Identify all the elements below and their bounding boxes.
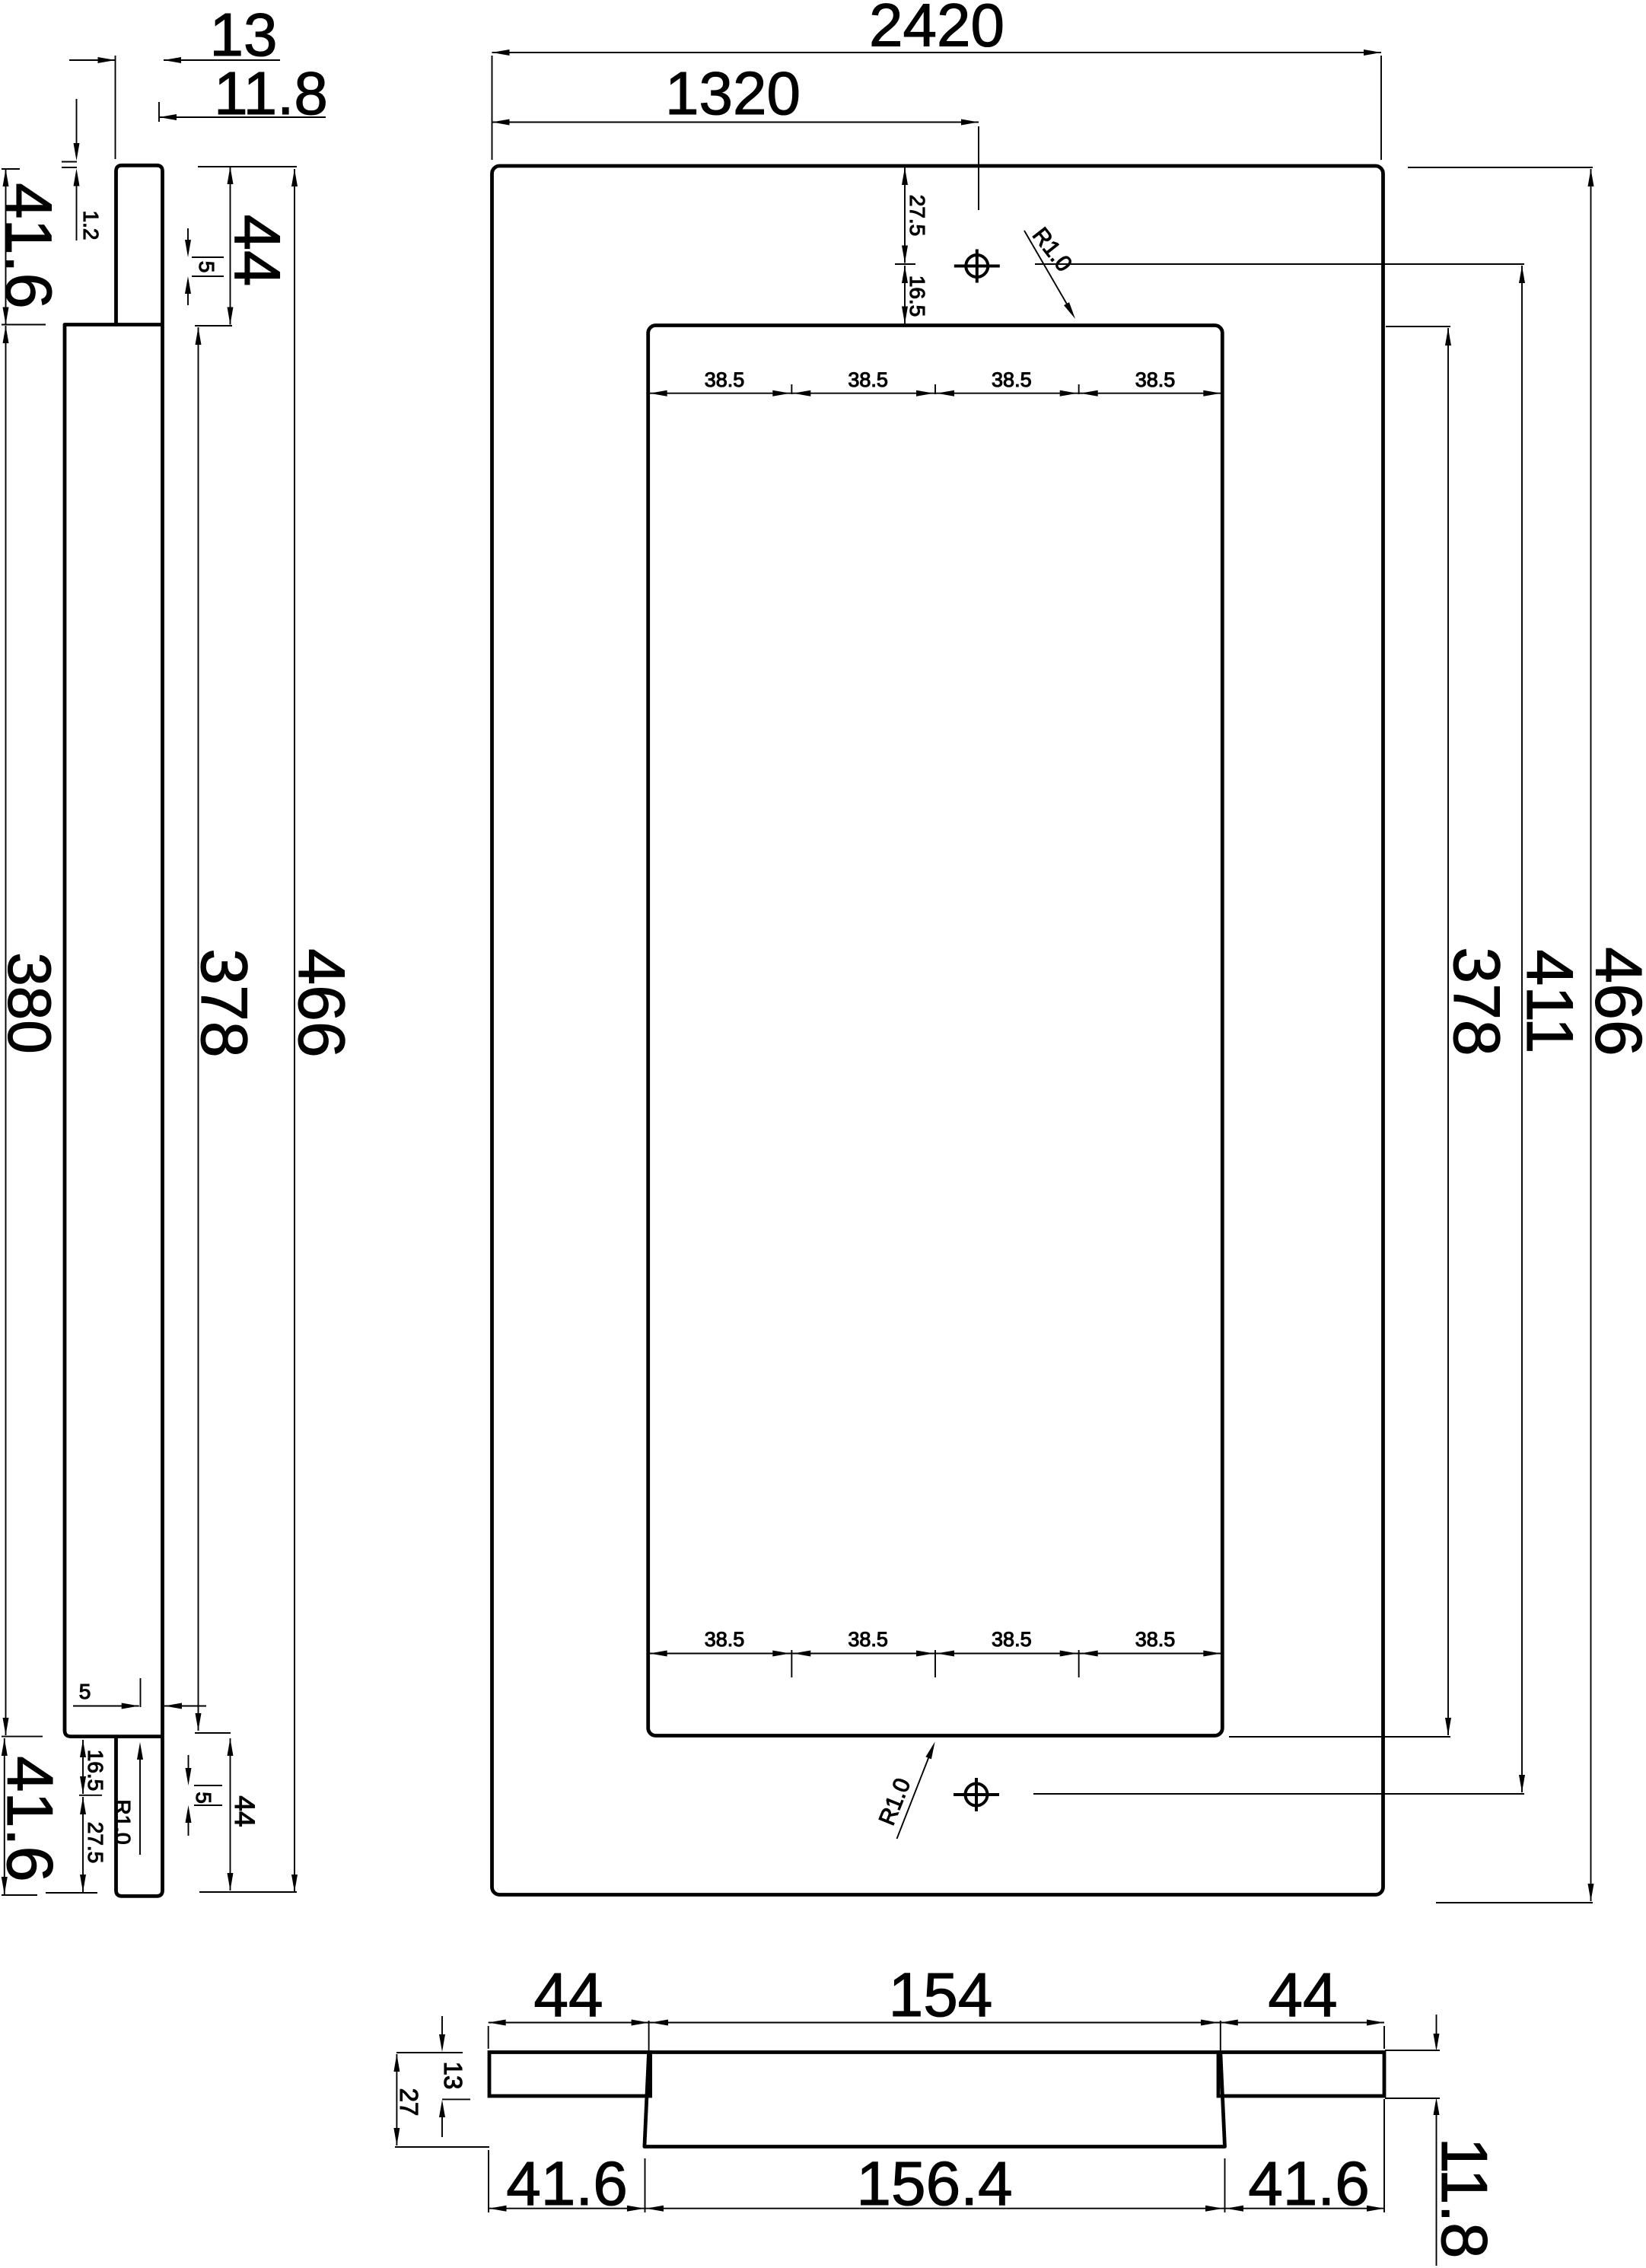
svg-text:411: 411	[1513, 949, 1586, 1053]
svg-text:378: 378	[187, 948, 260, 1058]
svg-text:38.5: 38.5	[1135, 1628, 1176, 1651]
svg-text:5: 5	[195, 261, 218, 273]
svg-text:16.5: 16.5	[84, 1750, 107, 1792]
svg-text:466: 466	[285, 948, 358, 1058]
svg-text:378: 378	[1440, 947, 1513, 1056]
svg-text:1320: 1320	[665, 59, 801, 127]
svg-text:44: 44	[1268, 1961, 1337, 2030]
svg-text:16.5: 16.5	[906, 276, 929, 317]
svg-text:38.5: 38.5	[848, 368, 888, 391]
svg-text:44: 44	[229, 1795, 260, 1827]
svg-text:27.5: 27.5	[906, 195, 929, 237]
svg-text:5: 5	[79, 1680, 91, 1703]
svg-text:27: 27	[395, 2088, 423, 2117]
svg-text:38.5: 38.5	[705, 1628, 745, 1651]
svg-text:2420: 2420	[869, 0, 1004, 59]
svg-text:154: 154	[889, 1961, 993, 2030]
svg-text:27.5: 27.5	[84, 1822, 107, 1864]
svg-text:41.6: 41.6	[0, 1756, 65, 1881]
svg-text:13: 13	[210, 1, 278, 68]
svg-text:44: 44	[221, 215, 293, 287]
svg-text:38.5: 38.5	[992, 368, 1032, 391]
svg-text:1.2: 1.2	[79, 211, 103, 240]
svg-text:11.8: 11.8	[1428, 2137, 1500, 2258]
svg-text:13: 13	[439, 2062, 467, 2090]
svg-text:38.5: 38.5	[848, 1628, 888, 1651]
svg-text:41.6: 41.6	[0, 183, 65, 308]
svg-text:38.5: 38.5	[992, 1628, 1032, 1651]
svg-text:44: 44	[533, 1961, 603, 2030]
svg-text:380: 380	[0, 952, 64, 1053]
svg-text:38.5: 38.5	[705, 368, 745, 391]
svg-text:466: 466	[1582, 947, 1646, 1056]
svg-text:38.5: 38.5	[1135, 368, 1176, 391]
svg-text:R1.0: R1.0	[111, 1799, 135, 1844]
svg-text:5: 5	[192, 1792, 215, 1804]
